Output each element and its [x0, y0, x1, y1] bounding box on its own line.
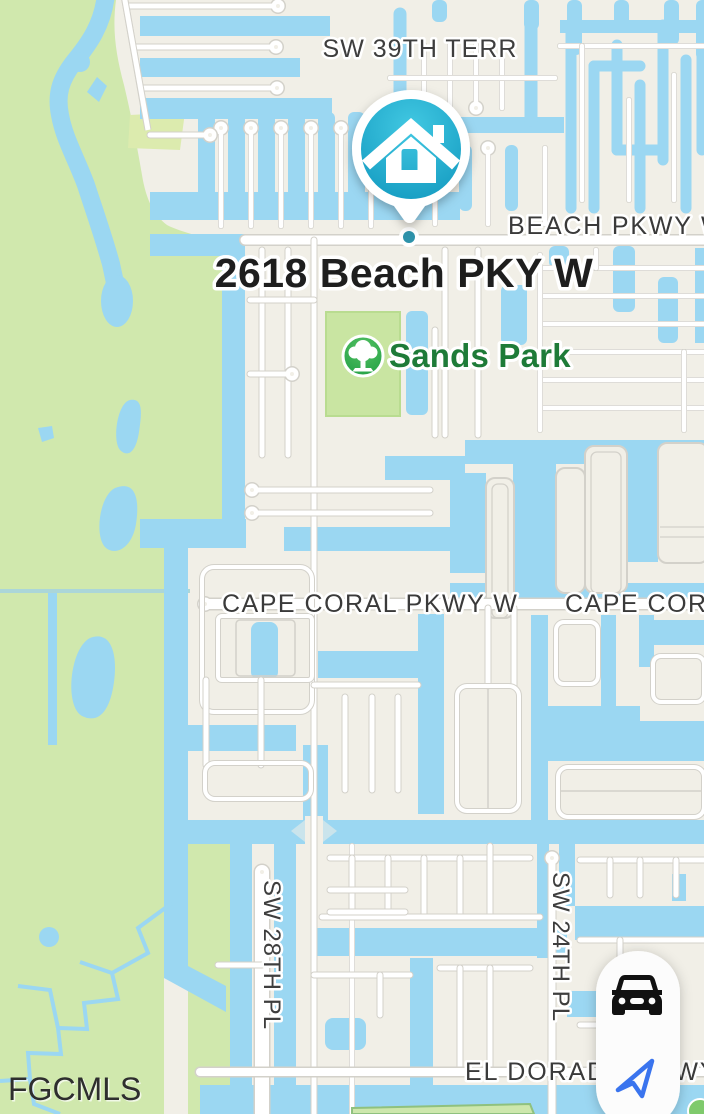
svg-text:SW 24TH PL: SW 24TH PL — [547, 872, 574, 1022]
svg-text:BEACH PKWY W: BEACH PKWY W — [508, 212, 704, 240]
svg-text:SW 28TH PL: SW 28TH PL — [258, 880, 285, 1030]
svg-text:CAPE COR: CAPE COR — [565, 590, 704, 618]
svg-text:SW 39TH TERR: SW 39TH TERR — [323, 35, 518, 63]
svg-text:FGCMLS: FGCMLS — [8, 1071, 141, 1107]
svg-text:2618 Beach PKY W: 2618 Beach PKY W — [215, 250, 594, 296]
svg-text:Sands Park: Sands Park — [389, 337, 571, 374]
svg-text:CAPE CORAL PKWY W: CAPE CORAL PKWY W — [222, 590, 518, 618]
